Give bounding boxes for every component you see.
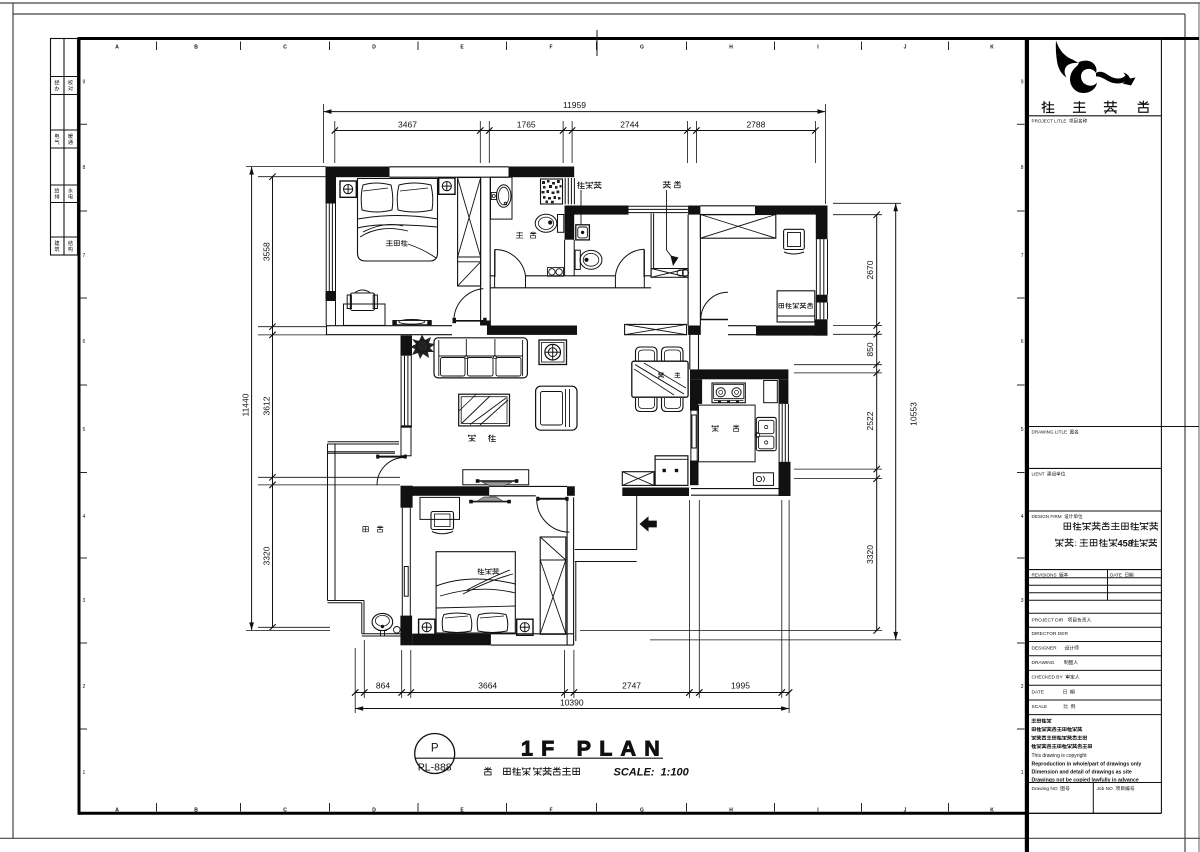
svg-text:2744: 2744 xyxy=(620,119,639,129)
svg-text:DRAWING LITLE 图名: DRAWING LITLE 图名 xyxy=(1032,429,1079,436)
svg-text:B: B xyxy=(194,45,198,51)
svg-text:2: 2 xyxy=(1021,684,1024,690)
svg-text:结: 结 xyxy=(68,239,73,247)
svg-text:2670: 2670 xyxy=(865,260,875,279)
svg-text:暖: 暖 xyxy=(68,132,74,140)
svg-text:3: 3 xyxy=(1021,598,1024,604)
svg-text:P: P xyxy=(431,743,439,755)
svg-text::: : xyxy=(1075,538,1077,548)
svg-text:对: 对 xyxy=(68,85,73,93)
svg-text:3320: 3320 xyxy=(261,546,271,565)
svg-text:7: 7 xyxy=(83,253,86,259)
svg-text:Dimension and detail of drawin: Dimension and detail of drawings as site xyxy=(1032,770,1132,776)
svg-text:电: 电 xyxy=(54,132,59,140)
svg-text:A: A xyxy=(115,808,119,814)
svg-text:7: 7 xyxy=(1021,253,1024,259)
svg-text:1995: 1995 xyxy=(731,681,750,691)
svg-text:Job NO 项目编号: Job NO 项目编号 xyxy=(1097,785,1135,792)
svg-text:DESIGN FIRM 设计单位: DESIGN FIRM 设计单位 xyxy=(1032,513,1083,520)
svg-text:G: G xyxy=(640,45,644,51)
svg-text:2522: 2522 xyxy=(865,411,875,430)
svg-text:11440: 11440 xyxy=(241,393,251,416)
svg-text:J: J xyxy=(904,45,907,51)
svg-text:458: 458 xyxy=(1118,539,1133,549)
svg-text:CHECKED BY 审定人: CHECKED BY 审定人 xyxy=(1032,673,1080,680)
svg-text:D: D xyxy=(372,45,376,51)
svg-text:J: J xyxy=(904,808,907,814)
svg-text:PROJECT DIR 项目负责人: PROJECT DIR 项目负责人 xyxy=(1032,616,1092,623)
svg-text:1F PLAN: 1F PLAN xyxy=(521,737,668,761)
svg-text:2747: 2747 xyxy=(622,681,641,691)
svg-text:建: 建 xyxy=(54,239,59,247)
svg-text:SCALE: 1:100: SCALE: 1:100 xyxy=(614,767,690,779)
svg-text:5: 5 xyxy=(83,427,86,433)
svg-text:10390: 10390 xyxy=(560,698,584,708)
svg-text:SCALE 比 例: SCALE 比 例 xyxy=(1032,703,1076,710)
svg-text:C: C xyxy=(283,808,287,814)
svg-text:8: 8 xyxy=(1021,165,1024,171)
svg-text:气: 气 xyxy=(54,138,59,146)
svg-text:A: A xyxy=(115,45,119,51)
svg-text:G: G xyxy=(640,808,644,814)
svg-text:1765: 1765 xyxy=(517,119,536,129)
svg-text:6: 6 xyxy=(1021,339,1024,345)
svg-text:864: 864 xyxy=(376,681,390,691)
svg-text:10553: 10553 xyxy=(909,402,919,426)
svg-text:DATE 日 期: DATE 日 期 xyxy=(1032,689,1076,695)
svg-text:8: 8 xyxy=(83,165,86,171)
svg-text:通: 通 xyxy=(68,138,74,146)
svg-text:DESIGNER 设计师: DESIGNER 设计师 xyxy=(1032,645,1080,652)
svg-text:构: 构 xyxy=(68,245,73,253)
svg-text:850: 850 xyxy=(865,342,875,356)
svg-text:4: 4 xyxy=(83,514,86,520)
svg-text:DIRECTOR DER: DIRECTOR DER xyxy=(1032,631,1069,637)
svg-text:经: 经 xyxy=(54,79,59,87)
svg-text:办: 办 xyxy=(54,85,59,93)
svg-text:3612: 3612 xyxy=(261,396,271,415)
svg-text:1: 1 xyxy=(83,770,86,776)
svg-text:9: 9 xyxy=(1021,80,1024,86)
svg-text:3: 3 xyxy=(83,598,86,604)
svg-text:5: 5 xyxy=(1021,427,1024,433)
svg-text:6: 6 xyxy=(83,339,86,345)
svg-text:2788: 2788 xyxy=(746,119,765,129)
svg-text:筑: 筑 xyxy=(54,245,60,253)
svg-text:H: H xyxy=(729,808,733,814)
svg-text:3664: 3664 xyxy=(478,681,497,691)
svg-text:3320: 3320 xyxy=(865,545,875,564)
svg-text:H: H xyxy=(729,45,733,51)
svg-text:D: D xyxy=(372,808,376,814)
svg-text:水: 水 xyxy=(68,187,74,195)
svg-text:9: 9 xyxy=(83,80,86,86)
svg-text:K: K xyxy=(990,45,994,51)
svg-text:4: 4 xyxy=(1021,514,1024,520)
svg-text:PL-888: PL-888 xyxy=(418,762,452,774)
svg-text:F: F xyxy=(549,45,552,51)
svg-text:2: 2 xyxy=(83,684,86,690)
svg-text:排: 排 xyxy=(54,193,59,201)
svg-text:1: 1 xyxy=(1021,770,1024,776)
svg-text:F: F xyxy=(549,808,552,814)
svg-text:This drawing is copyright: This drawing is copyright xyxy=(1032,753,1088,759)
svg-text:DRAWING 制图人: DRAWING 制图人 xyxy=(1032,659,1079,666)
svg-text:C: C xyxy=(283,45,287,51)
svg-text:3558: 3558 xyxy=(261,242,271,261)
svg-text:3467: 3467 xyxy=(398,119,417,129)
svg-text:电: 电 xyxy=(68,193,73,201)
svg-text:B: B xyxy=(194,808,198,814)
svg-text:Drawing NO 图号: Drawing NO 图号 xyxy=(1032,786,1071,792)
svg-text:K: K xyxy=(990,808,994,814)
svg-text:11959: 11959 xyxy=(563,100,586,110)
svg-text:LIENT 建设单位: LIENT 建设单位 xyxy=(1032,471,1066,478)
svg-text:PROJECT LITLE 项目名称: PROJECT LITLE 项目名称 xyxy=(1032,118,1088,125)
svg-text:给: 给 xyxy=(54,187,59,195)
svg-text:Reproduction in whole/part of: Reproduction in whole/part of drawings o… xyxy=(1032,762,1142,768)
svg-text:校: 校 xyxy=(68,79,73,87)
